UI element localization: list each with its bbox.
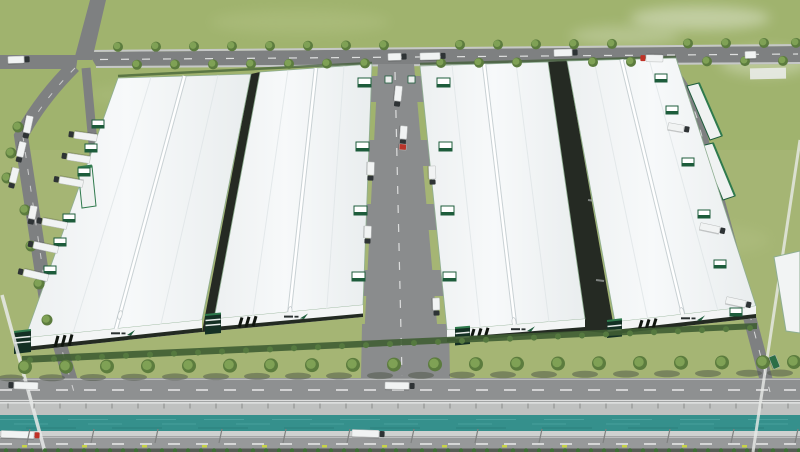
tree-highlight bbox=[190, 42, 197, 49]
tree-shadow bbox=[531, 371, 557, 378]
median-plant bbox=[562, 445, 567, 448]
bush bbox=[675, 328, 681, 334]
junction-pavement-pad bbox=[750, 68, 786, 80]
tree-highlight bbox=[209, 60, 216, 67]
truck-cab bbox=[433, 310, 439, 315]
truck bbox=[398, 144, 406, 151]
aerial-render-image bbox=[0, 0, 800, 452]
scene-aerial-industrial-park bbox=[0, 0, 800, 452]
truck-trailer bbox=[429, 166, 436, 179]
tree-highlight bbox=[228, 42, 235, 49]
median-plant bbox=[142, 445, 147, 448]
tree-highlight bbox=[608, 40, 615, 47]
bush bbox=[411, 340, 417, 346]
dock-canopy-base bbox=[92, 125, 104, 128]
bush bbox=[339, 343, 345, 349]
truck-cab bbox=[394, 101, 400, 107]
bush bbox=[291, 345, 297, 351]
tree-shadow bbox=[767, 370, 793, 377]
bush bbox=[123, 353, 129, 359]
bush bbox=[315, 344, 321, 350]
bush bbox=[507, 336, 513, 342]
tree-highlight bbox=[347, 359, 357, 369]
bush bbox=[267, 346, 273, 352]
truck-trailer bbox=[420, 52, 440, 60]
tree-shadow bbox=[449, 372, 475, 379]
tree-highlight bbox=[792, 38, 799, 45]
truck-cab bbox=[24, 56, 29, 62]
tree-highlight bbox=[20, 205, 27, 212]
dock-canopy-base bbox=[352, 278, 365, 281]
dock-canopy-base bbox=[358, 84, 371, 87]
tree-highlight bbox=[675, 357, 685, 367]
bush bbox=[483, 337, 489, 343]
bush bbox=[459, 338, 465, 344]
bush bbox=[75, 355, 81, 361]
boulevard-lower-carriageway bbox=[0, 436, 800, 449]
median-plant bbox=[742, 445, 747, 448]
tree-highlight bbox=[380, 41, 387, 48]
canal-lower-wall bbox=[0, 431, 800, 436]
bush bbox=[171, 351, 177, 357]
tree-highlight bbox=[634, 357, 644, 367]
bush bbox=[195, 350, 201, 356]
tree-shadow bbox=[408, 372, 434, 379]
central-road-apron bbox=[363, 270, 447, 296]
truck bbox=[745, 51, 756, 59]
median-plant bbox=[262, 445, 267, 448]
tree-highlight bbox=[429, 359, 439, 369]
bush bbox=[51, 356, 57, 362]
tree-highlight bbox=[361, 59, 368, 66]
tree-highlight bbox=[570, 40, 577, 47]
tree-highlight bbox=[716, 357, 726, 367]
truck-trailer bbox=[646, 55, 663, 62]
haze-patch bbox=[630, 6, 770, 30]
tree-highlight bbox=[779, 57, 786, 64]
tree-highlight bbox=[593, 358, 603, 368]
truck-cab bbox=[402, 54, 407, 60]
truck bbox=[1, 431, 40, 440]
tree-highlight bbox=[589, 58, 596, 65]
truck-cab bbox=[410, 383, 415, 389]
tree-highlight bbox=[703, 57, 710, 64]
tree-shadow bbox=[80, 374, 106, 381]
tree-highlight bbox=[470, 358, 480, 368]
tree-highlight bbox=[224, 360, 234, 370]
median-plant bbox=[502, 445, 507, 448]
tree-shadow bbox=[203, 373, 229, 380]
tree-highlight bbox=[323, 59, 330, 66]
bush bbox=[627, 330, 633, 336]
bush bbox=[555, 334, 561, 340]
median-plant bbox=[682, 445, 687, 448]
tree-shadow bbox=[490, 371, 516, 378]
truck-cab bbox=[53, 176, 59, 183]
median-plant bbox=[382, 445, 387, 448]
dock-canopy-base bbox=[439, 148, 452, 151]
tree-shadow bbox=[613, 371, 639, 378]
tree-highlight bbox=[183, 360, 193, 370]
truck-cab bbox=[61, 153, 67, 160]
bush bbox=[699, 327, 705, 333]
bush bbox=[387, 341, 393, 347]
grass-mottle bbox=[210, 10, 390, 34]
tree-highlight bbox=[304, 41, 311, 48]
tree-highlight bbox=[34, 279, 41, 286]
tree-highlight bbox=[306, 359, 316, 369]
truck-cab bbox=[684, 126, 690, 133]
checkpoint-booth bbox=[385, 76, 392, 83]
truck-trailer bbox=[14, 382, 38, 390]
tree-shadow bbox=[39, 374, 65, 381]
bush bbox=[531, 335, 537, 341]
bush bbox=[243, 347, 249, 353]
tree-highlight bbox=[19, 361, 29, 371]
tree-shadow bbox=[572, 371, 598, 378]
gap-panel bbox=[596, 280, 604, 281]
median-plant bbox=[202, 445, 207, 448]
dock-canopy-base bbox=[441, 212, 454, 215]
tree-highlight bbox=[722, 39, 729, 46]
bush bbox=[603, 331, 609, 337]
dock-canopy-base bbox=[698, 215, 710, 218]
tree-highlight bbox=[42, 315, 49, 322]
tree-highlight bbox=[266, 42, 273, 49]
bush bbox=[651, 329, 657, 335]
truck-trailer bbox=[745, 51, 756, 58]
tree-highlight bbox=[760, 39, 767, 46]
truck-trailer bbox=[554, 49, 572, 56]
tree-highlight bbox=[684, 39, 691, 46]
tree-highlight bbox=[788, 356, 798, 366]
truck-cab bbox=[379, 431, 384, 437]
corner-office-block bbox=[205, 314, 221, 335]
tree-shadow bbox=[285, 373, 311, 380]
tree-highlight bbox=[475, 58, 482, 65]
tree-highlight bbox=[532, 40, 539, 47]
tree-shadow bbox=[736, 370, 762, 377]
dock-canopy-base bbox=[85, 149, 97, 152]
truck-cab bbox=[68, 131, 74, 138]
bush bbox=[747, 325, 753, 331]
median-plant bbox=[22, 445, 27, 448]
tree-highlight bbox=[494, 40, 501, 47]
truck-trailer bbox=[385, 382, 409, 389]
tree-highlight bbox=[627, 57, 634, 64]
canal-water bbox=[0, 415, 800, 431]
bush bbox=[363, 342, 369, 348]
dock-canopy-base bbox=[714, 265, 726, 268]
tree-shadow bbox=[162, 373, 188, 380]
bush bbox=[723, 326, 729, 332]
haze-patch bbox=[570, 26, 680, 46]
tree-highlight bbox=[114, 42, 121, 49]
tree-highlight bbox=[171, 60, 178, 67]
dock-canopy-base bbox=[443, 278, 456, 281]
tree-highlight bbox=[456, 40, 463, 47]
dock-canopy-base bbox=[354, 212, 367, 215]
dock-canopy-base bbox=[356, 148, 369, 151]
tree-highlight bbox=[285, 59, 292, 66]
truck-trailer bbox=[399, 144, 406, 150]
dock-canopy-base bbox=[666, 111, 678, 114]
bush bbox=[99, 354, 105, 360]
bush bbox=[219, 348, 225, 354]
median-plant bbox=[322, 445, 327, 448]
tree-highlight bbox=[60, 361, 70, 371]
truck-cab bbox=[34, 432, 39, 438]
tree-highlight bbox=[552, 358, 562, 368]
tree-highlight bbox=[511, 358, 521, 368]
dock-canopy-base bbox=[78, 173, 90, 176]
bush bbox=[147, 352, 153, 358]
truck-cab bbox=[640, 55, 645, 61]
median-plant bbox=[442, 445, 447, 448]
truck-trailer bbox=[433, 298, 440, 310]
tree-highlight bbox=[101, 361, 111, 371]
truck-trailer bbox=[394, 86, 403, 102]
dock-canopy-base bbox=[437, 84, 450, 87]
truck-cab bbox=[441, 53, 446, 59]
tree-highlight bbox=[133, 60, 140, 67]
tree-shadow bbox=[695, 370, 721, 377]
truck-trailer bbox=[8, 56, 24, 64]
truck-trailer bbox=[352, 430, 379, 438]
canal-upper-wall bbox=[0, 402, 800, 415]
dock-canopy-base bbox=[682, 163, 694, 166]
tree-shadow bbox=[326, 372, 352, 379]
bush bbox=[579, 332, 585, 338]
dock-canopy-base bbox=[730, 313, 742, 316]
tree-highlight bbox=[757, 356, 767, 366]
truck-trailer bbox=[400, 126, 408, 139]
truck-trailer bbox=[364, 226, 371, 238]
central-road-apron bbox=[365, 204, 445, 230]
truck-trailer bbox=[388, 53, 401, 60]
bush bbox=[435, 339, 441, 345]
tree-shadow bbox=[121, 374, 147, 381]
tree-highlight bbox=[6, 148, 13, 155]
median-plant bbox=[622, 445, 627, 448]
checkpoint-booth bbox=[408, 76, 415, 83]
truck-cab bbox=[364, 238, 370, 243]
tree-highlight bbox=[265, 360, 275, 370]
tree-highlight bbox=[513, 58, 520, 65]
median-plant bbox=[82, 445, 87, 448]
dock-canopy-base bbox=[655, 79, 667, 82]
truck-trailer bbox=[367, 162, 374, 175]
tree-highlight bbox=[342, 41, 349, 48]
tree-highlight bbox=[13, 122, 20, 129]
tree-highlight bbox=[152, 42, 159, 49]
truck-cab bbox=[573, 49, 578, 55]
truck-cab bbox=[367, 175, 373, 180]
truck-cab bbox=[429, 179, 435, 184]
tree-shadow bbox=[654, 370, 680, 377]
truck-cab bbox=[8, 382, 13, 388]
tree-shadow bbox=[244, 373, 270, 380]
tree-shadow bbox=[367, 372, 393, 379]
tree-highlight bbox=[388, 359, 398, 369]
tree-highlight bbox=[247, 60, 254, 67]
tree-highlight bbox=[142, 360, 152, 370]
